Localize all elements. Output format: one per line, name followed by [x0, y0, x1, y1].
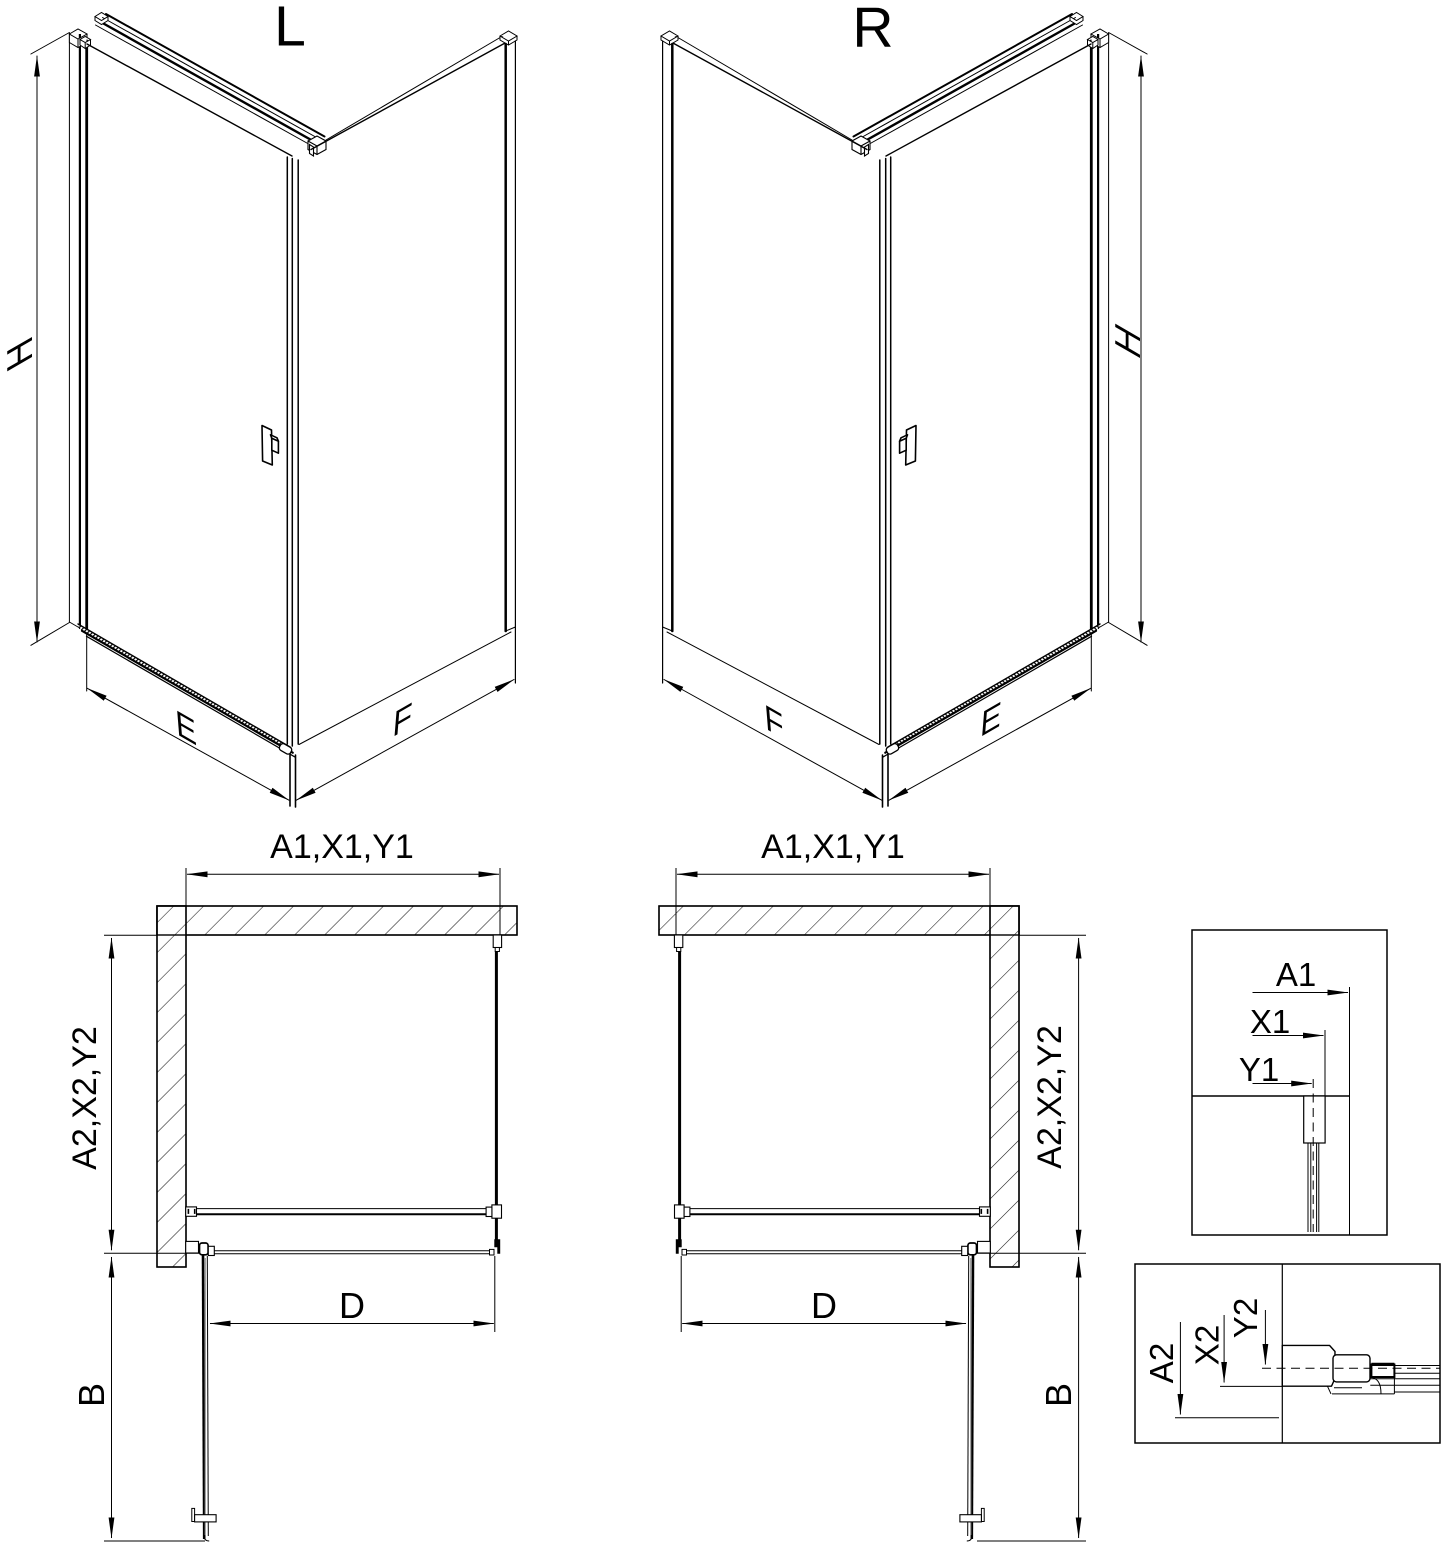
svg-text:B: B [1038, 1383, 1079, 1407]
svg-text:X1: X1 [1250, 1003, 1290, 1040]
svg-text:D: D [339, 1285, 365, 1326]
svg-text:Y1: Y1 [1239, 1051, 1279, 1088]
svg-text:D: D [811, 1285, 837, 1326]
svg-text:A1: A1 [1276, 956, 1316, 993]
svg-text:A1,X1,Y1: A1,X1,Y1 [270, 828, 414, 866]
svg-text:B: B [71, 1383, 112, 1407]
svg-text:Y2: Y2 [1227, 1298, 1264, 1338]
svg-text:R: R [852, 0, 893, 60]
svg-text:X2: X2 [1189, 1325, 1226, 1365]
svg-text:A2,X2,Y2: A2,X2,Y2 [1031, 1025, 1069, 1169]
svg-text:A2,X2,Y2: A2,X2,Y2 [66, 1026, 104, 1170]
svg-text:A1,X1,Y1: A1,X1,Y1 [761, 828, 905, 866]
svg-text:A2: A2 [1143, 1343, 1180, 1383]
svg-text:L: L [274, 0, 306, 59]
